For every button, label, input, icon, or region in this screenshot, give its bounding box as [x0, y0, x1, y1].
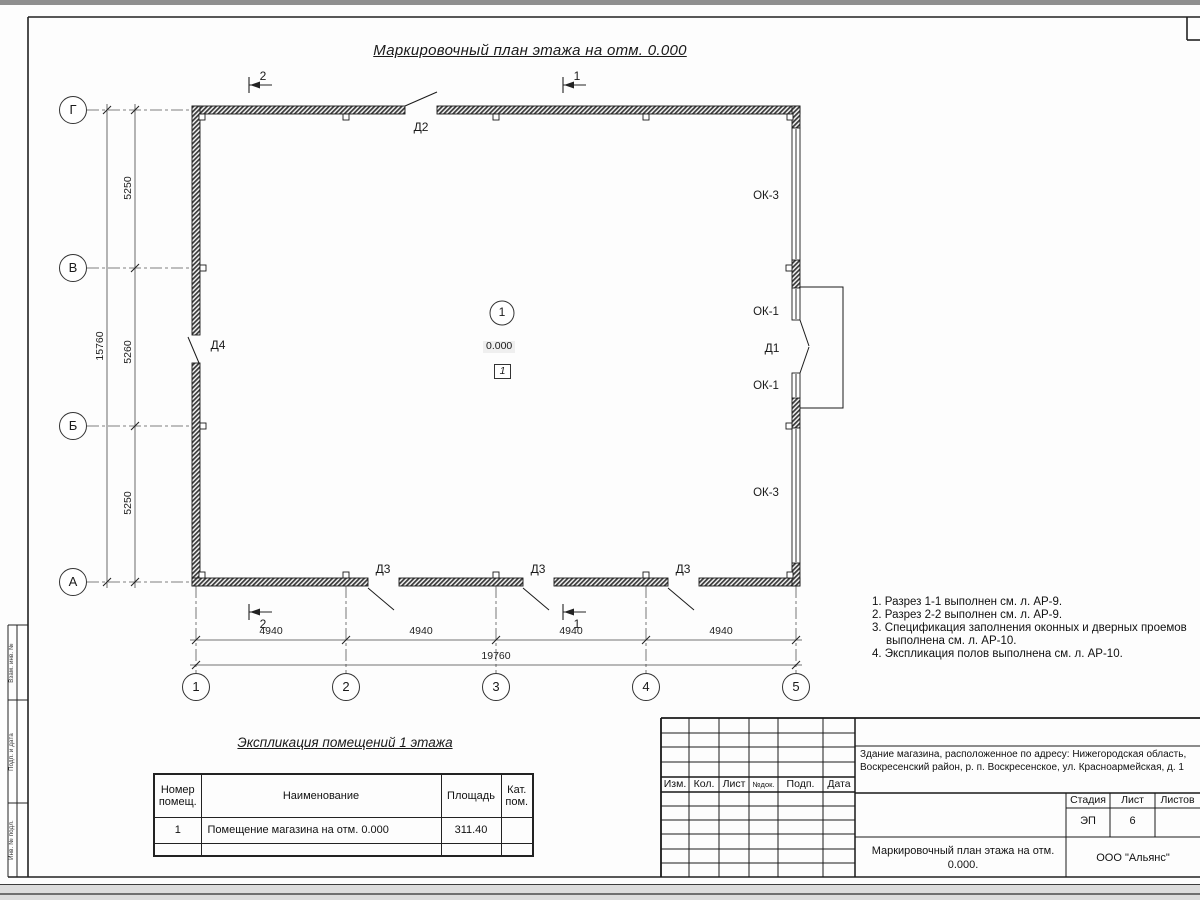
axis-circles — [60, 97, 810, 701]
stamp-label-vzam: Взам. инв. № — [4, 633, 20, 693]
tb-col-list: Лист — [719, 779, 749, 791]
door-tag-d4: Д4 — [198, 339, 238, 352]
section-mark-1-top: 1 — [567, 70, 587, 83]
sheet-frame — [8, 17, 1200, 877]
table-row-empty — [154, 843, 533, 856]
axis-label-4: 4 — [633, 674, 659, 700]
tb-col-podp: Подп. — [778, 779, 823, 791]
note-1: 1. Разрез 1-1 выполнен см. л. АР-9. — [872, 596, 1198, 609]
dim-5250-bottom: 5250 — [121, 473, 137, 533]
tb-col-izm: Изм. — [661, 779, 689, 791]
section-markers — [249, 77, 586, 620]
drawing-title: Маркировочный план этажа на отм. 0.000 — [300, 43, 760, 60]
tb-stage-label: Стадия — [1066, 795, 1110, 807]
window-tag-ok1-top: ОК-1 — [741, 306, 791, 319]
floor-type-marker: 1 — [494, 364, 511, 379]
dim-5260-mid: 5260 — [121, 322, 137, 382]
door-tag-d3-2: Д3 — [518, 563, 558, 576]
axis-label-g: Г — [60, 97, 86, 123]
axis-label-1: 1 — [183, 674, 209, 700]
axis-label-3: 3 — [483, 674, 509, 700]
tb-stage-value: ЭП — [1066, 815, 1110, 827]
tb-sheet-label: Лист — [1110, 795, 1155, 807]
axis-label-b: Б — [60, 413, 86, 439]
tb-sheets-label: Листов — [1155, 795, 1200, 807]
notes-list: 1. Разрез 1-1 выполнен см. л. АР-9. 2. Р… — [872, 596, 1198, 661]
tb-company: ООО "Альянс" — [1066, 843, 1200, 873]
table-row: 1 Помещение магазина на отм. 0.000 311.4… — [154, 817, 533, 843]
windows — [792, 128, 800, 563]
explication-table: Номер помещ. Наименование Площадь Кат. п… — [153, 773, 534, 857]
dim-4940-2: 4940 — [391, 626, 451, 638]
section-mark-2-bottom: 2 — [253, 618, 273, 631]
door-tag-d2: Д2 — [401, 121, 441, 134]
dim-15760-total: 15760 — [93, 316, 109, 376]
section-mark-1-bottom: 1 — [567, 618, 587, 631]
cell-area: 311.40 — [441, 817, 501, 843]
window-tag-ok1-bottom: ОК-1 — [741, 380, 791, 393]
window-tag-ok3-top: ОК-3 — [741, 190, 791, 203]
room-elevation: 0.000 — [483, 341, 515, 353]
dim-5250-top: 5250 — [121, 158, 137, 218]
tb-col-kol: Кол. — [689, 779, 719, 791]
col-name: Наименование — [201, 774, 441, 817]
note-4: 4. Экспликация полов выполнена см. л. АР… — [872, 648, 1198, 661]
dim-4940-4: 4940 — [691, 626, 751, 638]
note-3: 3. Спецификация заполнения оконных и две… — [872, 622, 1198, 648]
door-tag-d3-3: Д3 — [663, 563, 703, 576]
col-category: Кат. пом. — [501, 774, 533, 817]
door-tag-d1: Д1 — [752, 342, 792, 355]
porch-outline — [800, 287, 843, 408]
note-2: 2. Разрез 2-2 выполнен см. л. АР-9. — [872, 609, 1198, 622]
tb-col-ndok: №док. — [749, 781, 778, 789]
axis-label-2: 2 — [333, 674, 359, 700]
tb-col-data: Дата — [823, 779, 855, 791]
room-number: 1 — [489, 301, 515, 325]
tb-sheet-title: Маркировочный план этажа на отм. 0.000. — [870, 843, 1056, 873]
explication-title: Экспликация помещений 1 этажа — [190, 736, 500, 751]
tb-project-description: Здание магазина, расположенное по адресу… — [860, 749, 1198, 791]
dim-19760-total: 19760 — [466, 651, 526, 663]
window-tag-ok3-bottom: ОК-3 — [741, 487, 791, 500]
col-room-number: Номер помещ. — [154, 774, 201, 817]
stamp-label-podp: Подп. и дата — [4, 722, 20, 782]
axis-label-5: 5 — [783, 674, 809, 700]
axis-label-v: В — [60, 255, 86, 281]
cell-name: Помещение магазина на отм. 0.000 — [201, 817, 441, 843]
stamp-label-inv: Инв. № подл. — [4, 810, 20, 870]
door-tag-d3-1: Д3 — [363, 563, 403, 576]
cell-category — [501, 817, 533, 843]
tb-sheet-value: 6 — [1110, 815, 1155, 827]
col-area: Площадь — [441, 774, 501, 817]
cell-room-number: 1 — [154, 817, 201, 843]
drawing-sheet: Маркировочный план этажа на отм. 0.000 Г… — [0, 0, 1200, 900]
section-mark-2-top: 2 — [253, 70, 273, 83]
axis-label-a: А — [60, 569, 86, 595]
